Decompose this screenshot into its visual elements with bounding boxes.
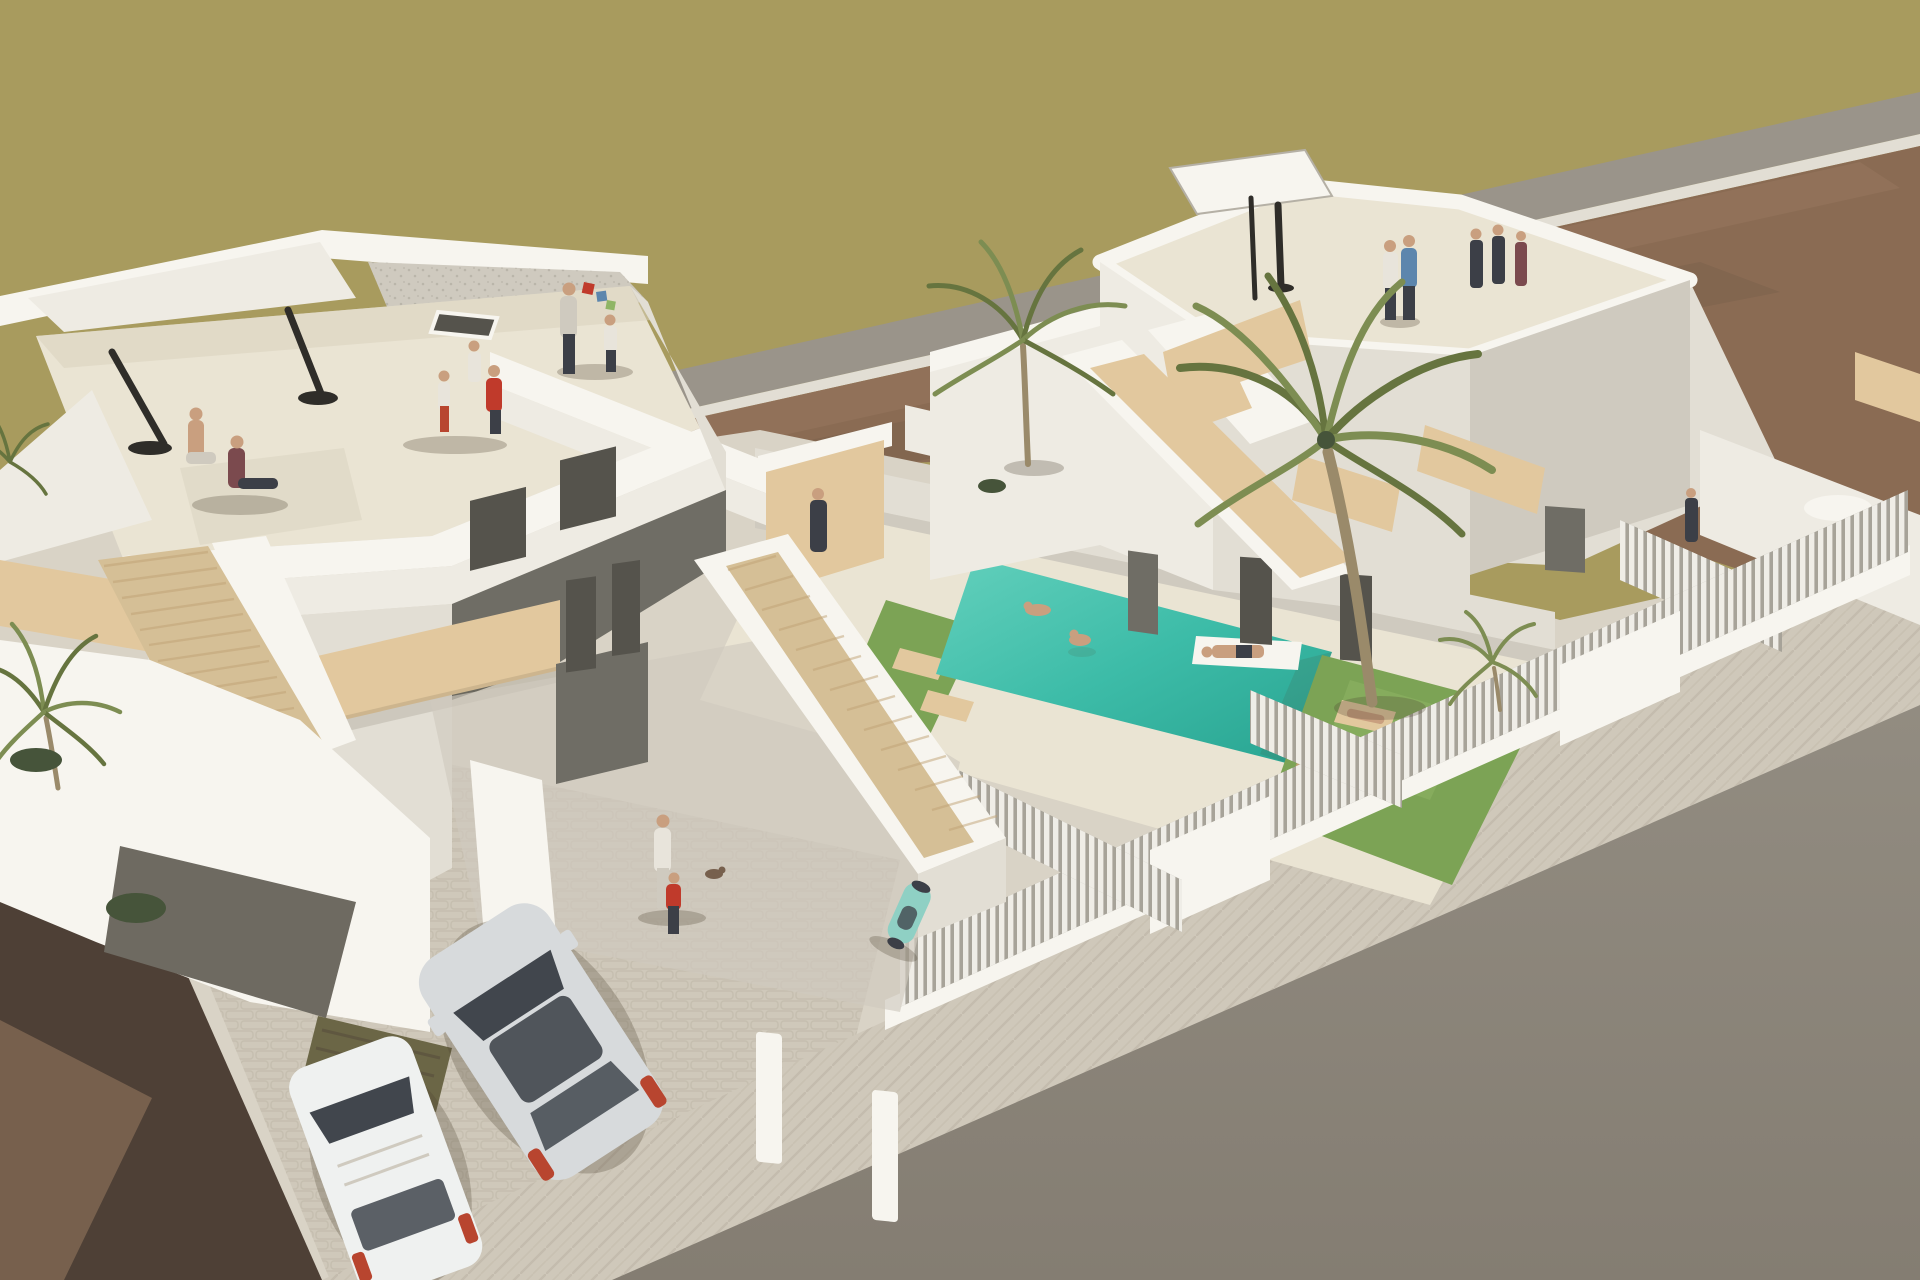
palm-crown [1317,431,1335,449]
person [1492,236,1505,284]
swimmer-head [1024,602,1033,611]
man-head [190,408,203,421]
mother-torso [560,296,577,338]
kite-green [605,300,615,310]
glass-door [566,576,596,672]
child-torso [604,326,617,352]
people-shadow [192,495,288,515]
shrub-on-wall [978,479,1006,493]
person [1515,242,1527,286]
kids-shadow [403,436,507,454]
swimmer-shadow [1068,647,1096,657]
closed-parasol [1278,205,1281,286]
man-legs [186,452,216,464]
villa-render [0,0,1920,1280]
mother-head [563,283,576,296]
glass-door [612,560,640,656]
toddler-pants [440,406,449,432]
adult-head [657,815,670,828]
child-head [605,315,616,326]
person-head [1493,225,1504,236]
boy-white [468,352,481,382]
shrub [10,748,62,772]
parasol-base [298,391,338,405]
boy-red-head [488,365,500,377]
render-canvas [0,0,1920,1280]
parasol-base [128,441,172,455]
woman-legs [238,478,278,489]
toddler [438,382,450,410]
kite-blue [596,291,607,302]
boy-red [486,378,502,412]
child-legs [606,350,616,372]
gate-pillar [872,1090,898,1223]
glass-panel [470,487,526,571]
float-person-head [1202,647,1213,658]
swimmer-head [1070,630,1079,639]
adult-torso [654,828,671,872]
woman-head [231,436,244,449]
toddler-head [439,371,450,382]
roof-group [1470,225,1527,289]
palm-shadow [1334,696,1426,720]
gate-pillar [756,1031,782,1164]
child-head [669,873,680,884]
child-legs [668,906,679,934]
person-head [812,488,824,500]
person-head [1516,231,1526,241]
palm-shadow [1004,460,1064,476]
boy-red-legs [490,410,501,434]
window-opening [1545,506,1585,573]
boy-head [469,341,480,352]
window-opening [1128,551,1158,635]
person-head [1384,240,1396,252]
patio-shrub [106,893,166,923]
person-head [1471,229,1482,240]
person-legs [1403,286,1415,320]
person-head [1686,488,1696,498]
door-opening [1240,557,1272,645]
person [1470,240,1483,288]
person-by-fence [1685,498,1698,542]
dog-head [719,867,726,874]
kite-pink [582,282,595,295]
roof-skylight [431,312,497,338]
person-on-balcony [810,500,827,552]
float-person-shorts [1236,645,1252,658]
glass-panel [560,446,616,530]
person-head [1403,235,1415,247]
mother-legs [563,334,575,374]
